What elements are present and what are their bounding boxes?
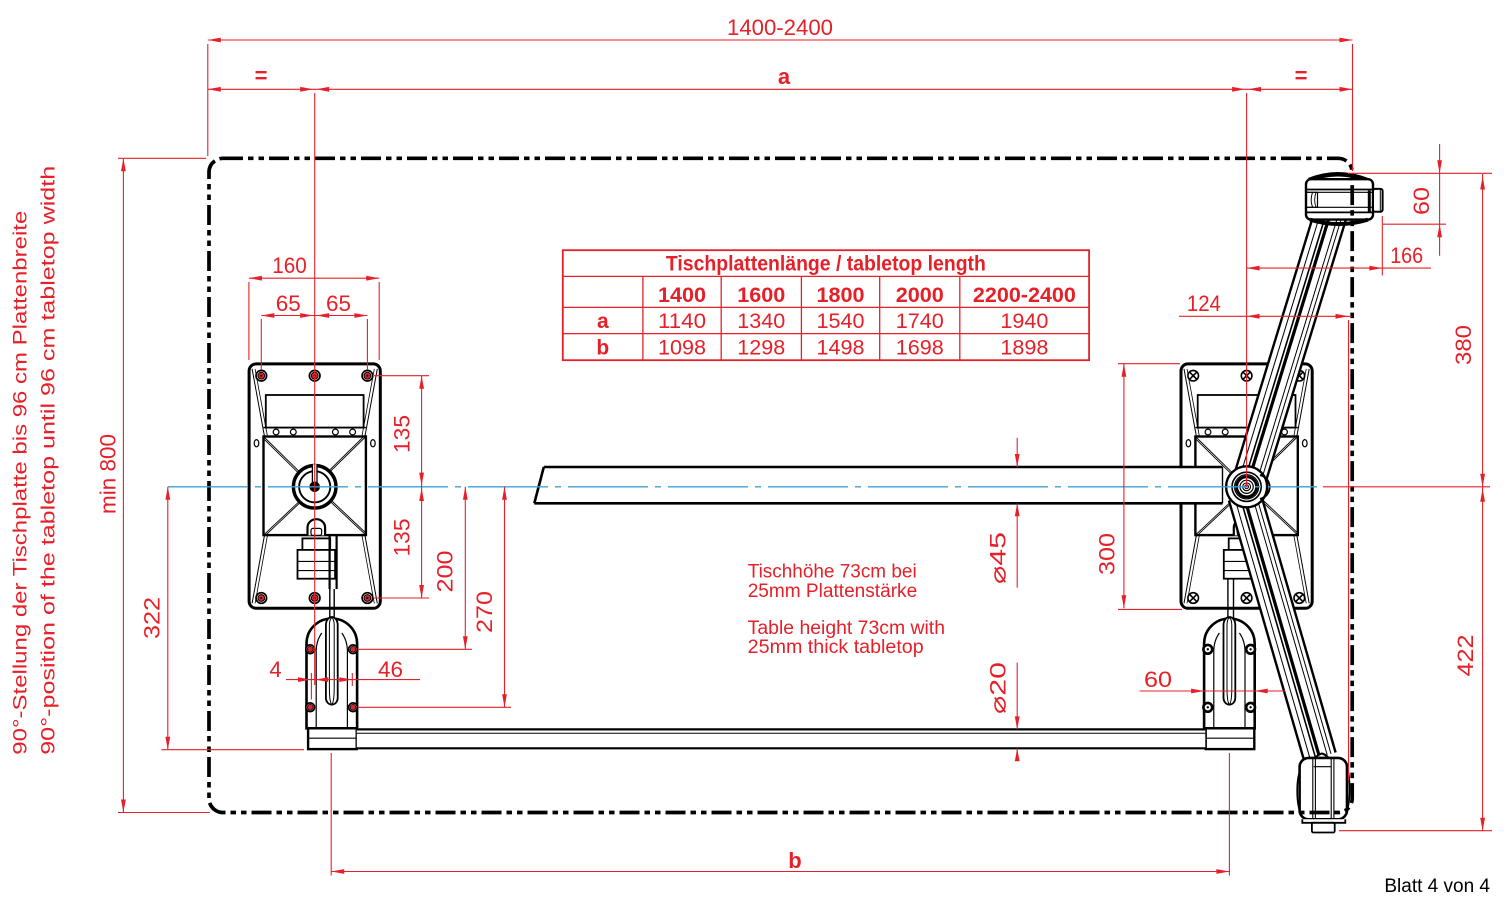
svg-text:46: 46 xyxy=(378,657,403,682)
svg-text:270: 270 xyxy=(472,591,497,633)
svg-text:b: b xyxy=(596,337,609,360)
svg-text:1540: 1540 xyxy=(817,310,865,333)
svg-text:=: = xyxy=(1295,63,1308,88)
svg-text:2200-2400: 2200-2400 xyxy=(973,284,1076,307)
svg-text:60: 60 xyxy=(1144,667,1172,692)
svg-text:1140: 1140 xyxy=(658,310,706,333)
svg-text:25mm Plattenstärke: 25mm Plattenstärke xyxy=(748,581,918,602)
svg-text:65: 65 xyxy=(326,291,351,316)
svg-text:Tischhöhe 73cm bei: Tischhöhe 73cm bei xyxy=(748,562,917,583)
svg-text:=: = xyxy=(255,63,268,88)
svg-text:⌀20: ⌀20 xyxy=(986,662,1011,714)
svg-text:200: 200 xyxy=(433,551,458,593)
svg-text:1898: 1898 xyxy=(1000,337,1048,360)
svg-text:min 800: min 800 xyxy=(96,434,121,514)
svg-text:25mm thick tabletop: 25mm thick tabletop xyxy=(748,637,924,658)
svg-text:1400-2400: 1400-2400 xyxy=(727,15,833,40)
svg-text:135: 135 xyxy=(390,519,415,557)
svg-text:1340: 1340 xyxy=(737,310,785,333)
svg-text:a: a xyxy=(597,310,609,333)
svg-text:1600: 1600 xyxy=(737,284,785,307)
svg-text:124: 124 xyxy=(1187,291,1221,316)
svg-text:1800: 1800 xyxy=(817,284,865,307)
svg-text:160: 160 xyxy=(272,253,307,278)
svg-text:⌀45: ⌀45 xyxy=(986,532,1011,584)
svg-text:2000: 2000 xyxy=(896,284,944,307)
svg-text:135: 135 xyxy=(390,415,415,453)
svg-text:422: 422 xyxy=(1453,635,1478,677)
svg-text:60: 60 xyxy=(1409,187,1434,215)
svg-text:166: 166 xyxy=(1390,243,1423,268)
svg-text:322: 322 xyxy=(140,597,165,639)
svg-text:1740: 1740 xyxy=(896,310,944,333)
svg-text:1940: 1940 xyxy=(1000,310,1048,333)
svg-text:1298: 1298 xyxy=(737,337,785,360)
svg-text:4: 4 xyxy=(269,657,281,682)
svg-text:Blatt 4 von 4: Blatt 4 von 4 xyxy=(1384,876,1490,897)
svg-text:300: 300 xyxy=(1095,533,1120,575)
svg-text:65: 65 xyxy=(276,291,301,316)
svg-text:a: a xyxy=(778,64,791,89)
svg-text:1098: 1098 xyxy=(658,337,706,360)
svg-text:90°-position of the tabletop u: 90°-position of the tabletop until 96 cm… xyxy=(38,166,60,755)
svg-text:1400: 1400 xyxy=(658,284,706,307)
svg-text:380: 380 xyxy=(1451,325,1476,365)
svg-text:1698: 1698 xyxy=(896,337,944,360)
svg-text:Table height 73cm with: Table height 73cm with xyxy=(748,618,945,639)
svg-text:b: b xyxy=(788,848,801,873)
svg-text:Tischplattenlänge / tabletop l: Tischplattenlänge / tabletop length xyxy=(666,253,986,276)
svg-text:90°-Stellung der Tischplatte b: 90°-Stellung der Tischplatte bis 96 cm P… xyxy=(10,211,32,755)
svg-text:1498: 1498 xyxy=(817,337,865,360)
